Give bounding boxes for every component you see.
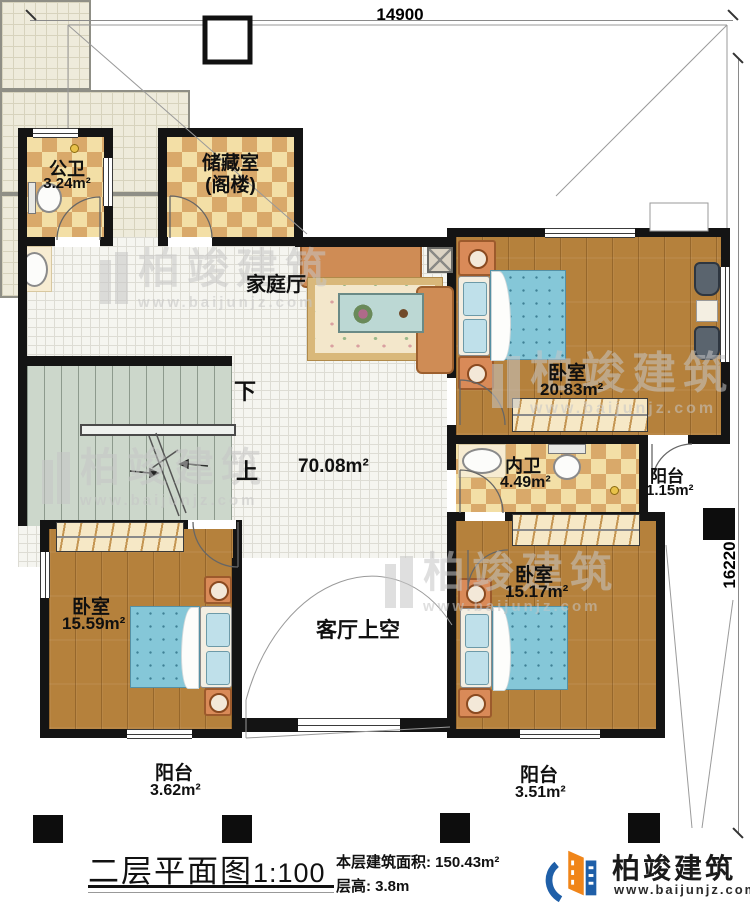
pillow: [206, 613, 230, 647]
door-opening: [188, 520, 236, 529]
window: [720, 267, 730, 362]
stair-treads: [27, 366, 232, 526]
table-flowers: [352, 303, 374, 325]
label-bedroom-master-area: 20.83m²: [540, 380, 603, 400]
brand-site: www.baijunjz.com: [614, 882, 750, 897]
wardrobe: [512, 398, 648, 432]
wall-segment: [295, 237, 456, 247]
brand-name: 柏竣建筑: [612, 847, 736, 887]
window: [33, 128, 78, 138]
label-stairs-up: 上: [236, 454, 258, 486]
floor-area-value: 150.43m²: [435, 854, 499, 871]
label-public-bath-area: 3.24m²: [27, 175, 107, 192]
nightstand: [204, 576, 232, 604]
label-living-void: 客厅上空: [316, 614, 400, 644]
bed-blanket: [130, 606, 200, 688]
floor-area-line: 本层建筑面积: 150.43m²: [336, 851, 499, 872]
door-opening: [447, 470, 456, 512]
door-opening: [648, 435, 688, 444]
floor-height-value: 3.8m: [375, 878, 409, 895]
floor-area-label: 本层建筑面积:: [336, 854, 431, 871]
stair-handrail: [80, 424, 236, 436]
label-balcony-sw: 阳台: [155, 758, 193, 785]
balcony-east: [0, 0, 91, 90]
pillow: [465, 614, 489, 648]
label-balcony-sw-area: 3.62m²: [150, 782, 201, 800]
bed-sheet: [181, 607, 199, 689]
dimension-line-right: [738, 58, 739, 834]
chair: [694, 262, 720, 296]
pillar: [440, 813, 470, 843]
dim-tick: [727, 9, 738, 20]
nightstand: [204, 688, 232, 716]
wardrobe: [56, 522, 184, 552]
brand-logo-icon: [545, 845, 607, 905]
bed-headboard: [458, 276, 490, 356]
label-balcony-se: 阳台: [520, 760, 558, 787]
window: [545, 228, 635, 238]
floor-height-line: 层高: 3.8m: [336, 875, 409, 896]
bed-blanket: [490, 270, 566, 360]
label-balcony-east-area: 1.15m²: [646, 482, 694, 499]
window: [298, 718, 400, 732]
pillow: [206, 651, 230, 685]
label-balcony-se-area: 3.51m²: [515, 784, 566, 802]
window: [520, 729, 600, 739]
staircase: [18, 356, 232, 526]
door-opening: [55, 237, 100, 247]
label-bedroom-west-area: 15.59m²: [62, 614, 125, 634]
title-underline-thin: [88, 892, 334, 893]
toilet-icon: [553, 454, 581, 480]
dimension-width-label: 14900: [340, 5, 460, 25]
door-opening: [465, 512, 505, 521]
nightstand: [458, 356, 494, 390]
window: [40, 552, 50, 598]
pillow: [463, 319, 487, 353]
label-inner-bath-area: 4.49m²: [500, 474, 551, 492]
bed-blanket: [492, 606, 568, 690]
table-bowl: [399, 309, 408, 318]
nightstand: [458, 578, 492, 608]
window: [127, 729, 192, 739]
label-hall-area: 70.08m²: [298, 456, 369, 478]
chair: [694, 326, 720, 360]
bed-headboard: [200, 606, 232, 688]
bed-sheet: [491, 271, 511, 361]
title-underline: [88, 885, 334, 888]
bed-headboard: [460, 608, 492, 688]
roof-chimney: [205, 18, 250, 62]
small-table: [696, 300, 718, 322]
wardrobe: [512, 514, 640, 546]
label-stairs-down: 下: [234, 374, 256, 406]
dimension-height-label: 16220: [720, 530, 740, 600]
wall-segment: [232, 558, 242, 720]
plan-scale: 1:100: [253, 858, 326, 888]
label-storage-line2: (阁楼): [163, 170, 298, 197]
pillar: [33, 815, 63, 843]
coffee-table: [338, 293, 424, 333]
label-family-hall: 家庭厅: [246, 268, 306, 297]
plan-title-text: 二层平面图: [88, 854, 253, 889]
fixture-dot: [70, 144, 79, 153]
floor-height-label: 层高:: [336, 878, 371, 895]
pillow: [465, 651, 489, 685]
pillar: [628, 813, 660, 843]
footer-banner: 二层平面图1:100 本层建筑面积: 150.43m² 层高: 3.8m 柏竣建…: [0, 843, 750, 907]
nightstand: [458, 688, 492, 718]
side-table: [427, 247, 453, 273]
pillar: [222, 815, 252, 843]
door-opening: [447, 378, 456, 425]
wall-segment: [18, 237, 27, 362]
bed-sheet: [493, 607, 511, 691]
toilet-tank: [548, 444, 586, 454]
fixture-dot: [610, 486, 619, 495]
sink-icon: [462, 448, 502, 474]
door-opening: [168, 237, 212, 247]
label-bedroom-south-area: 15.17m²: [505, 582, 568, 602]
pillow: [463, 282, 487, 316]
floor-plan-canvas: 14900 16220: [0, 0, 750, 907]
